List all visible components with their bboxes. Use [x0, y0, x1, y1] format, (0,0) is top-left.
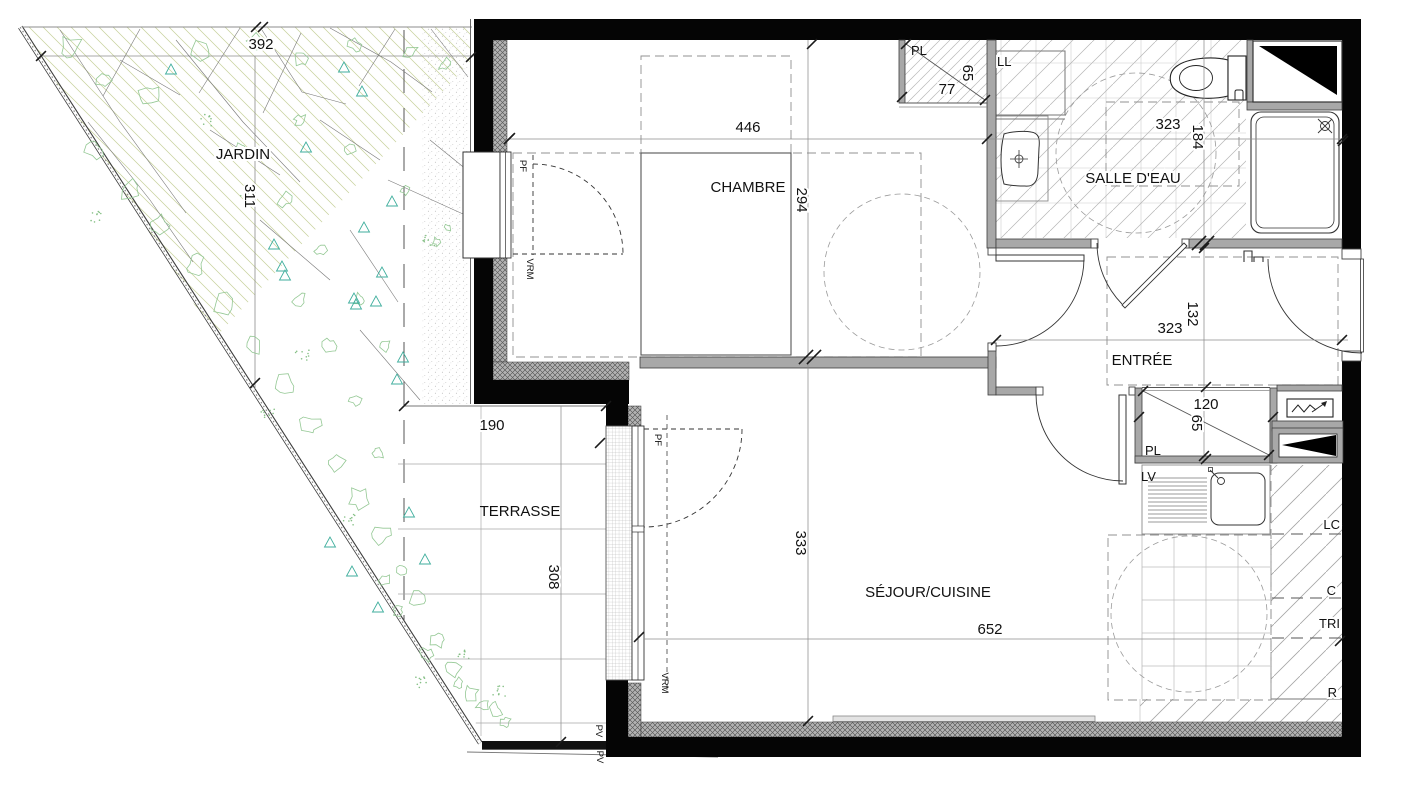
svg-text:308: 308: [545, 564, 562, 589]
svg-text:323: 323: [1157, 320, 1182, 337]
svg-text:TERRASSE: TERRASSE: [480, 503, 561, 520]
svg-text:333: 333: [792, 530, 809, 555]
svg-text:190: 190: [479, 417, 504, 434]
svg-text:LL: LL: [997, 54, 1011, 69]
svg-text:65: 65: [959, 65, 976, 82]
svg-text:77: 77: [939, 81, 956, 98]
svg-text:R: R: [1328, 685, 1337, 700]
svg-text:446: 446: [735, 119, 760, 136]
svg-text:PV: PV: [594, 751, 605, 764]
svg-text:PF: PF: [652, 434, 663, 446]
svg-text:294: 294: [793, 187, 810, 212]
svg-text:PF: PF: [517, 160, 528, 172]
svg-text:PL: PL: [1145, 443, 1161, 458]
svg-text:VRM: VRM: [659, 672, 670, 693]
svg-text:184: 184: [1189, 124, 1206, 149]
svg-text:SÉJOUR/CUISINE: SÉJOUR/CUISINE: [865, 584, 991, 601]
svg-text:JARDIN: JARDIN: [216, 146, 270, 163]
svg-text:VRM: VRM: [524, 258, 535, 279]
svg-text:LV: LV: [1141, 469, 1156, 484]
svg-text:120: 120: [1193, 396, 1218, 413]
svg-text:TRI: TRI: [1319, 616, 1340, 631]
svg-text:CHAMBRE: CHAMBRE: [710, 179, 785, 196]
svg-text:C: C: [1327, 583, 1336, 598]
svg-text:ENTRÉE: ENTRÉE: [1112, 352, 1173, 369]
svg-text:132: 132: [1184, 301, 1201, 326]
svg-text:SALLE D'EAU: SALLE D'EAU: [1085, 170, 1180, 187]
svg-text:392: 392: [248, 36, 273, 53]
svg-text:311: 311: [241, 184, 258, 208]
svg-text:652: 652: [977, 621, 1002, 638]
svg-text:323: 323: [1155, 116, 1180, 133]
svg-text:PL: PL: [911, 43, 927, 58]
svg-text:PV: PV: [593, 725, 604, 738]
svg-text:65: 65: [1188, 415, 1205, 432]
svg-text:LC: LC: [1323, 517, 1340, 532]
